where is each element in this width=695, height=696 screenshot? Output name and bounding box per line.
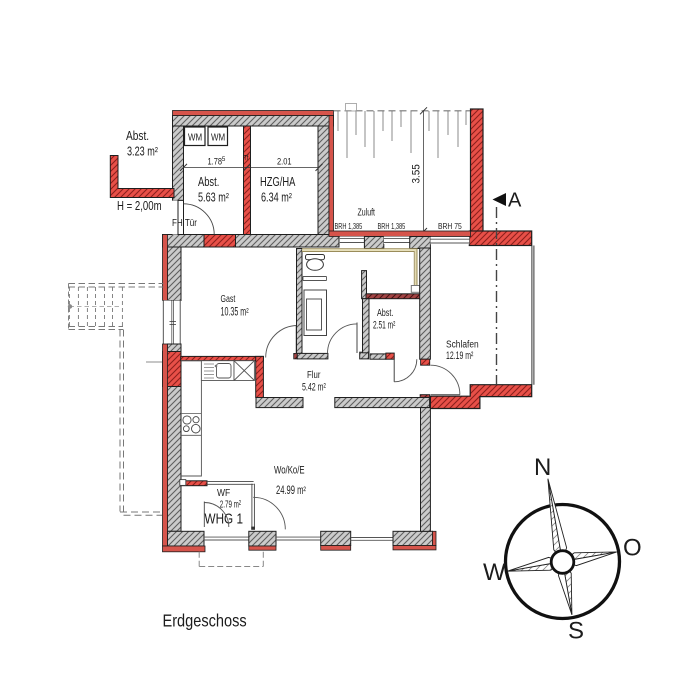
svg-text:5.42 m²: 5.42 m² bbox=[302, 381, 326, 393]
svg-text:Gast: Gast bbox=[221, 293, 236, 305]
svg-text:Erdgeschoss: Erdgeschoss bbox=[163, 611, 247, 631]
svg-text:H = 2,00m: H = 2,00m bbox=[117, 200, 162, 213]
svg-text:HZG/HA: HZG/HA bbox=[260, 176, 296, 190]
svg-text:5.63 m²: 5.63 m² bbox=[198, 191, 229, 205]
svg-text:6.34 m²: 6.34 m² bbox=[261, 191, 292, 205]
svg-text:Wo/Ko/E: Wo/Ko/E bbox=[274, 464, 305, 477]
svg-text:1.78: 1.78 bbox=[208, 157, 223, 167]
svg-text:3.55: 3.55 bbox=[411, 164, 423, 183]
svg-text:BRH 75: BRH 75 bbox=[438, 221, 462, 231]
svg-text:10.35 m²: 10.35 m² bbox=[221, 306, 249, 319]
svg-text:O: O bbox=[623, 535, 642, 562]
svg-text:WF: WF bbox=[217, 487, 231, 498]
svg-text:Abst.: Abst. bbox=[198, 176, 219, 190]
svg-text:24.99 m²: 24.99 m² bbox=[276, 485, 307, 498]
svg-text:FH Tür: FH Tür bbox=[172, 217, 197, 228]
svg-text:BRH 1,385: BRH 1,385 bbox=[335, 221, 363, 232]
svg-text:Abst.: Abst. bbox=[126, 129, 149, 143]
svg-text:WM: WM bbox=[211, 131, 225, 142]
svg-text:Flur: Flur bbox=[307, 369, 320, 380]
svg-text:W: W bbox=[483, 559, 506, 586]
svg-text:5: 5 bbox=[222, 156, 226, 163]
svg-text:S: S bbox=[568, 618, 584, 645]
svg-text:A: A bbox=[508, 190, 522, 212]
svg-text:WM: WM bbox=[188, 131, 202, 142]
svg-text:Tf: Tf bbox=[244, 154, 249, 162]
svg-text:2.01: 2.01 bbox=[277, 157, 292, 167]
svg-text:BRH 1,385: BRH 1,385 bbox=[378, 221, 406, 232]
svg-text:2.79 m²: 2.79 m² bbox=[220, 498, 241, 510]
svg-text:2.51 m²: 2.51 m² bbox=[373, 319, 395, 331]
svg-text:Zuluft: Zuluft bbox=[358, 206, 376, 218]
svg-text:12.19 m²: 12.19 m² bbox=[446, 349, 473, 361]
svg-text:Abst.: Abst. bbox=[377, 307, 393, 318]
svg-text:N: N bbox=[534, 454, 551, 481]
svg-text:3.23 m²: 3.23 m² bbox=[127, 145, 158, 159]
